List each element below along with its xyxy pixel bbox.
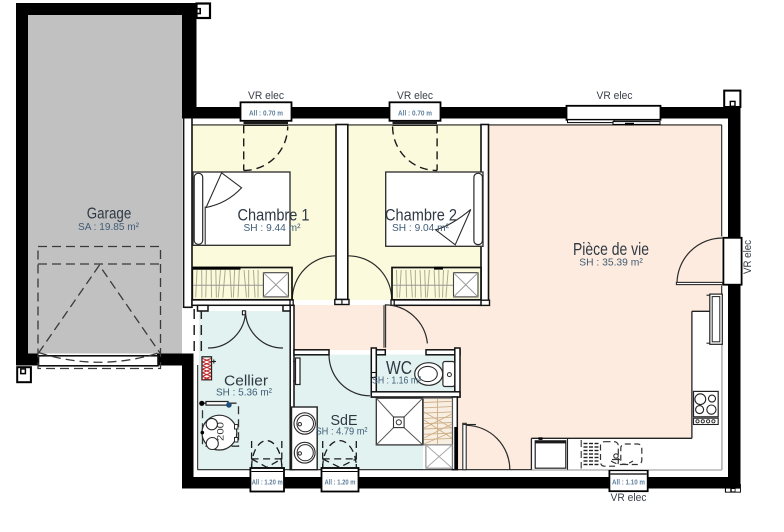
svg-text:SH : 9.44 m²: SH : 9.44 m² (244, 222, 301, 234)
svg-text:All : 1.20 m: All : 1.20 m (325, 479, 356, 486)
svg-text:VR elec: VR elec (248, 90, 284, 102)
svg-text:All : 0.70 m: All : 0.70 m (249, 111, 283, 118)
svg-text:SH : 5.36 m²: SH : 5.36 m² (216, 387, 272, 399)
svg-text:All : 1.10 m: All : 1.10 m (612, 480, 645, 487)
svg-text:Garage: Garage (87, 206, 132, 223)
svg-text:All : 1.20 m: All : 1.20 m (252, 479, 283, 486)
svg-text:SA : 19.85 m²: SA : 19.85 m² (78, 221, 139, 233)
svg-text:VR elec: VR elec (611, 492, 647, 504)
svg-text:SH : 4.79 m²: SH : 4.79 m² (316, 426, 368, 438)
svg-text:SH : 9.04 m²: SH : 9.04 m² (392, 222, 449, 234)
svg-text:200: 200 (216, 422, 227, 441)
svg-text:VR elec: VR elec (742, 240, 754, 274)
svg-text:SH : 1.16 m²: SH : 1.16 m² (372, 375, 421, 387)
svg-text:All : 0.70 m: All : 0.70 m (398, 111, 432, 118)
svg-text:VR elec: VR elec (397, 90, 433, 102)
svg-text:SH : 35.39 m²: SH : 35.39 m² (579, 257, 643, 269)
svg-text:VR elec: VR elec (597, 90, 633, 102)
